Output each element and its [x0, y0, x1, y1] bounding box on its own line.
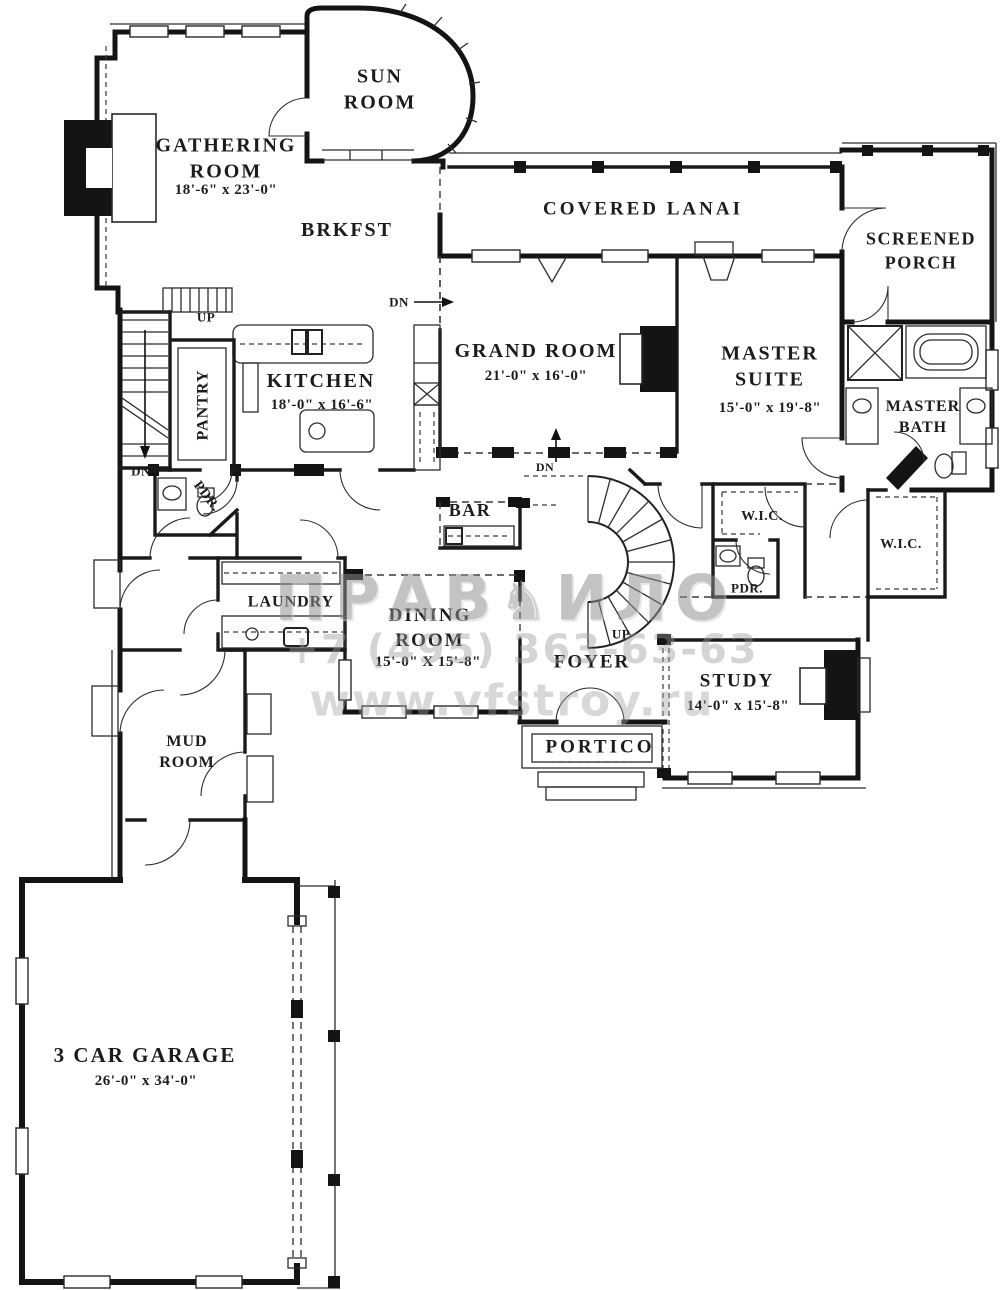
garage-porch-columns [297, 880, 340, 1288]
room-label-master-bath: MASTER BATH [886, 396, 960, 438]
marker-dn-kitchen: DN [389, 293, 409, 310]
room-dims-gathering: 18'-6" x 23'-0" [175, 181, 277, 201]
floor-plan-drawing [0, 0, 1000, 1290]
room-label-brkfst: BRKFST [301, 217, 393, 243]
room-dims-kitchen: 18'-0" x 16'-6" [271, 396, 373, 416]
staircase-curved [516, 476, 674, 648]
washer-icon [246, 628, 308, 646]
marker-dn-stairs: DN [131, 462, 151, 479]
room-label-mud-room: MUD ROOM [159, 731, 215, 773]
marker-up-curved: UP [612, 625, 630, 642]
grand-room-fireplace-icon [620, 326, 677, 392]
room-label-master-suite: MASTER SUITE [721, 341, 819, 394]
room-label-foyer: FOYER [554, 649, 631, 674]
room-label-portico: PORTICO [545, 734, 654, 759]
bath-toilet-icon [935, 452, 966, 478]
shower-icon [848, 326, 902, 380]
kitchen-island-sink-icon [300, 410, 374, 452]
staircase-main [120, 288, 232, 468]
room-label-screened-porch: SCREENED PORCH [866, 227, 976, 275]
room-label-powder2: PDR. [731, 579, 763, 596]
room-label-sun-room: SUN ROOM [344, 64, 416, 117]
laundry-walls [184, 520, 345, 650]
dn-arrow-kitchen [414, 297, 454, 307]
floor-plan-page: SUN ROOM GATHERING ROOM 18'-6" x 23'-0" … [0, 0, 1000, 1290]
room-label-covered-lanai: COVERED LANAI [543, 196, 743, 221]
room-dims-study: 14'-0" x 15'-8" [687, 697, 789, 717]
room-label-pantry: PANTRY [192, 370, 213, 441]
room-label-study: STUDY [700, 668, 774, 693]
room-dims-garage: 26'-0" x 34'-0" [95, 1072, 197, 1092]
room-dims-dining: 15'-0" X 15'-8" [375, 653, 481, 673]
room-label-wic1: W.I.C. [741, 508, 783, 526]
room-label-wic2: W.I.C. [880, 536, 922, 554]
marker-up-stairs: UP [197, 308, 215, 325]
marker-dn-grand: DN [536, 460, 554, 476]
room-label-dining: DINING ROOM [389, 603, 472, 653]
room-label-kitchen: KITCHEN [267, 368, 375, 394]
room-label-grand-room: GRAND ROOM [455, 338, 618, 364]
garage-door-dashed [288, 916, 306, 1268]
room-label-laundry: LAUNDRY [248, 591, 334, 612]
room-dims-grand-room: 21'-0" x 16'-0" [485, 367, 587, 387]
room-label-garage: 3 CAR GARAGE [54, 1042, 237, 1070]
room-dims-master-suite: 15'-0" x 19'-8" [719, 399, 821, 419]
room-label-bar: BAR [449, 499, 492, 523]
room-label-gathering: GATHERING ROOM [156, 133, 297, 186]
bathtub-icon [906, 326, 986, 378]
gathering-fireplace-icon [64, 114, 156, 222]
